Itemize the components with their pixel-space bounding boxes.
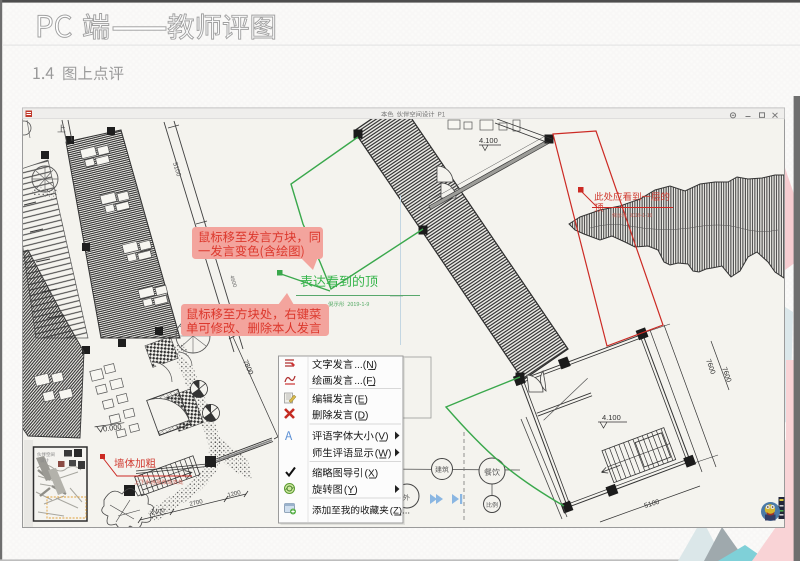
svg-text:4.100: 4.100 xyxy=(602,413,621,422)
svg-text:4.100: 4.100 xyxy=(479,136,498,145)
